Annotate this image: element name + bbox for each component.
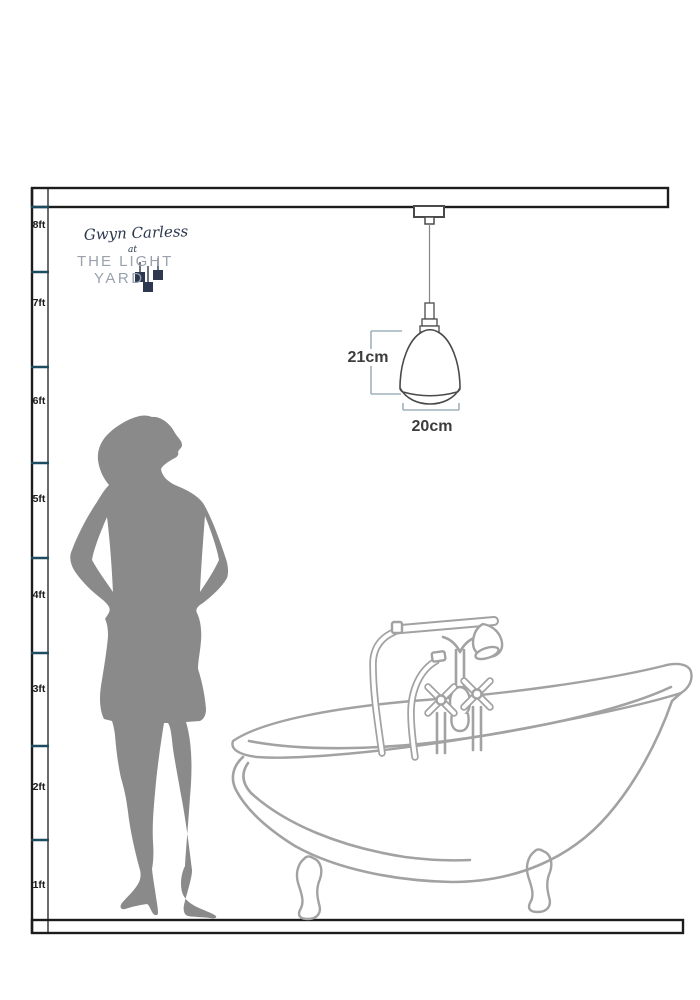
ceiling-band [32, 188, 668, 207]
tub-body-inner-line [243, 763, 470, 860]
hand-shower [392, 621, 502, 661]
width-dimension-label: 20cm [406, 418, 458, 435]
woman-silhouette [70, 416, 228, 919]
lamp-stem [425, 303, 434, 319]
tub-right-foot [527, 850, 551, 913]
lamp-shade [400, 330, 460, 396]
lamp-collar [422, 319, 437, 326]
ruler-label-5ft: 5ft [27, 493, 51, 505]
brand-name-line1: THE LIGHT [77, 253, 173, 270]
hose-fitting [432, 651, 446, 662]
floor-band [32, 920, 683, 933]
ruler-label-1ft: 1ft [27, 879, 51, 891]
ruler-label-2ft: 2ft [27, 781, 51, 793]
hose-nut [392, 622, 402, 633]
tub-left-foot [297, 857, 321, 920]
cord-grip [425, 217, 434, 224]
ruler-label-7ft: 7ft [27, 297, 51, 309]
woman-silhouette-drawing [70, 416, 228, 919]
ceiling-rose [414, 206, 444, 217]
pendant-light-drawing [400, 206, 460, 404]
ruler-label-8ft: 8ft [27, 219, 51, 231]
clawfoot-bathtub-drawing [232, 621, 691, 919]
height-dimension-label: 21cm [342, 349, 394, 366]
ruler-label-6ft: 6ft [27, 395, 51, 407]
brand-name-line2: YARD [94, 270, 145, 287]
product-dimension-diagram: 8ft 7ft 6ft 5ft 4ft 3ft 2ft 1ft 21cm 20c… [0, 0, 700, 1000]
diagram-artwork [0, 0, 700, 1000]
ruler-label-3ft: 3ft [27, 683, 51, 695]
ruler-label-4ft: 4ft [27, 589, 51, 601]
